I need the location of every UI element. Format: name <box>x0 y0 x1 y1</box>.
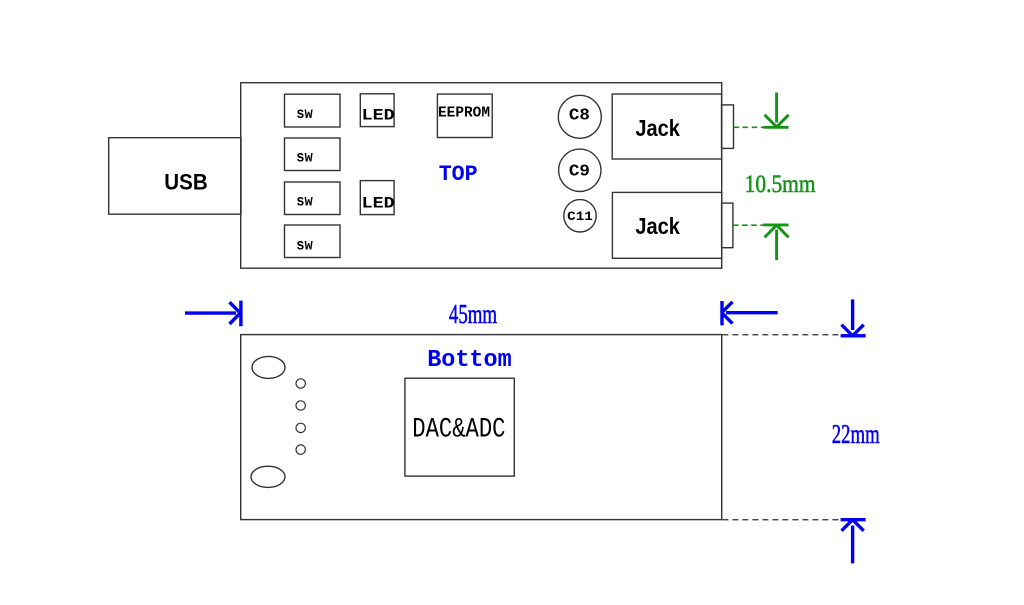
svg-text:sw: sw <box>296 193 313 211</box>
svg-text:USB: USB <box>164 170 207 195</box>
svg-text:sw: sw <box>296 237 313 255</box>
svg-text:TOP: TOP <box>439 162 478 187</box>
svg-text:10.5mm: 10.5mm <box>745 169 816 198</box>
svg-text:LED: LED <box>362 195 395 213</box>
svg-text:C11: C11 <box>567 209 593 224</box>
svg-text:Jack: Jack <box>635 213 680 239</box>
svg-text:LED: LED <box>362 107 395 125</box>
svg-text:EEPROM: EEPROM <box>438 106 490 122</box>
svg-text:Jack: Jack <box>635 115 680 141</box>
svg-text:Bottom: Bottom <box>427 347 512 374</box>
svg-text:sw: sw <box>296 105 313 123</box>
svg-text:DAC&ADC: DAC&ADC <box>412 415 505 446</box>
svg-text:sw: sw <box>296 149 313 167</box>
svg-text:C8: C8 <box>569 107 590 126</box>
svg-text:45mm: 45mm <box>449 299 497 329</box>
svg-text:22mm: 22mm <box>832 419 880 449</box>
svg-text:C9: C9 <box>569 163 590 182</box>
